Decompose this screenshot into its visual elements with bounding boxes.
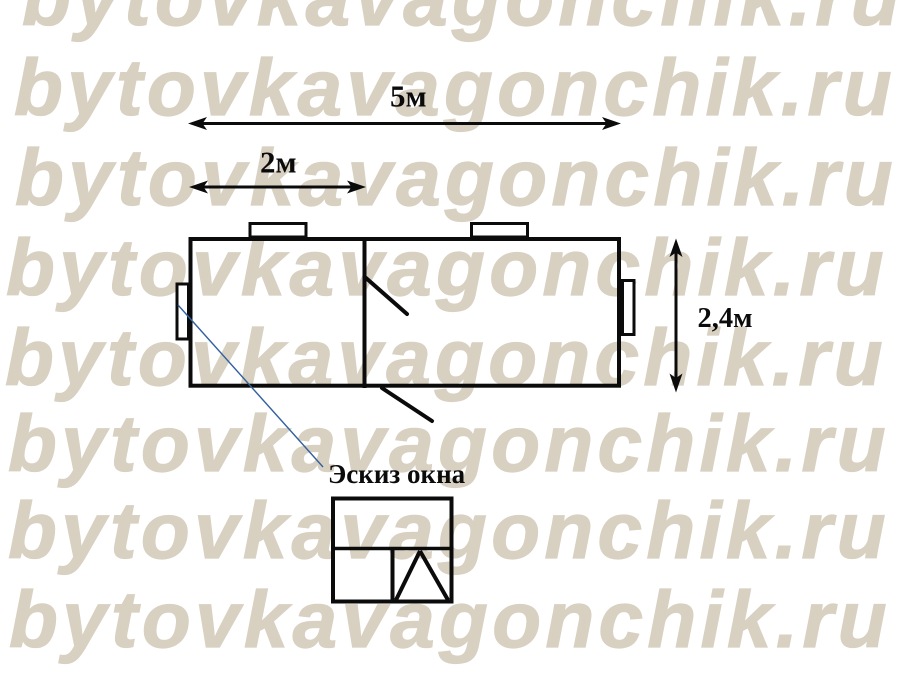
svg-text:2,4м: 2,4м	[698, 303, 753, 334]
svg-text:Эскиз окна: Эскиз окна	[328, 459, 466, 489]
svg-text:2м: 2м	[260, 145, 297, 180]
svg-text:5м: 5м	[390, 79, 427, 114]
